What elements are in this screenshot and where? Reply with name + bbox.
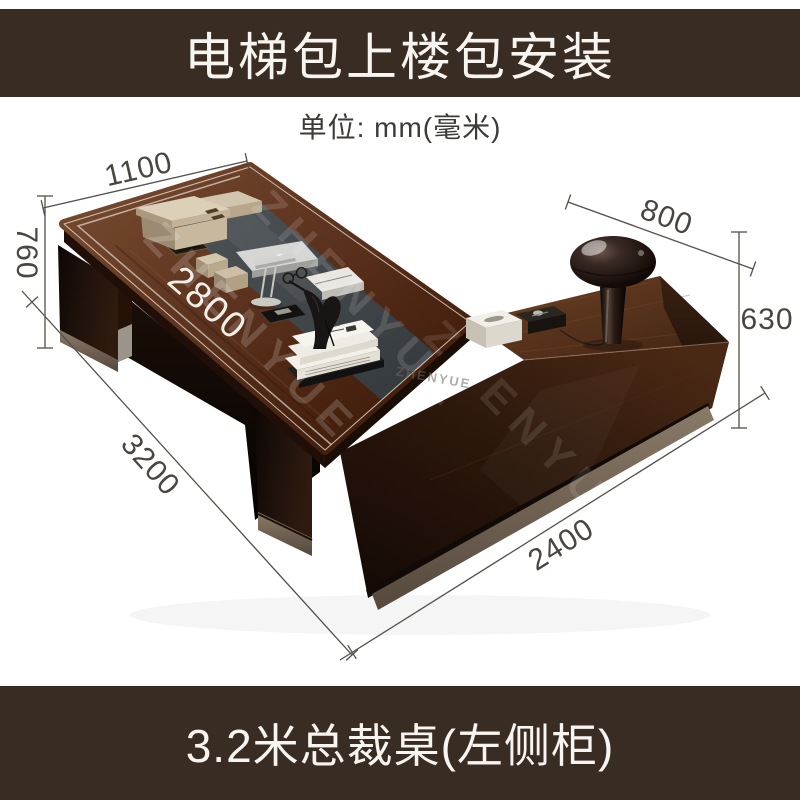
dimension-label-1100: 1100 [102, 146, 176, 194]
dimension-label-800: 800 [636, 193, 697, 242]
dimension-label-760: 760 [10, 226, 43, 279]
product-illustration: 1100 760 2800 800 630 3200 [0, 145, 800, 686]
header-banner: 电梯包上楼包安装 [0, 9, 800, 97]
dimension-label-3200: 3200 [114, 428, 186, 503]
unit-note: 单位: mm(毫米) [0, 108, 800, 148]
product-caption: 3.2米总裁桌(左侧柜) [186, 710, 615, 776]
footer-banner: 3.2米总裁桌(左侧柜) [0, 686, 800, 800]
floor-shadow [130, 595, 710, 635]
page-title: 电梯包上楼包安装 [184, 16, 616, 90]
dimension-label-630: 630 [740, 303, 793, 336]
